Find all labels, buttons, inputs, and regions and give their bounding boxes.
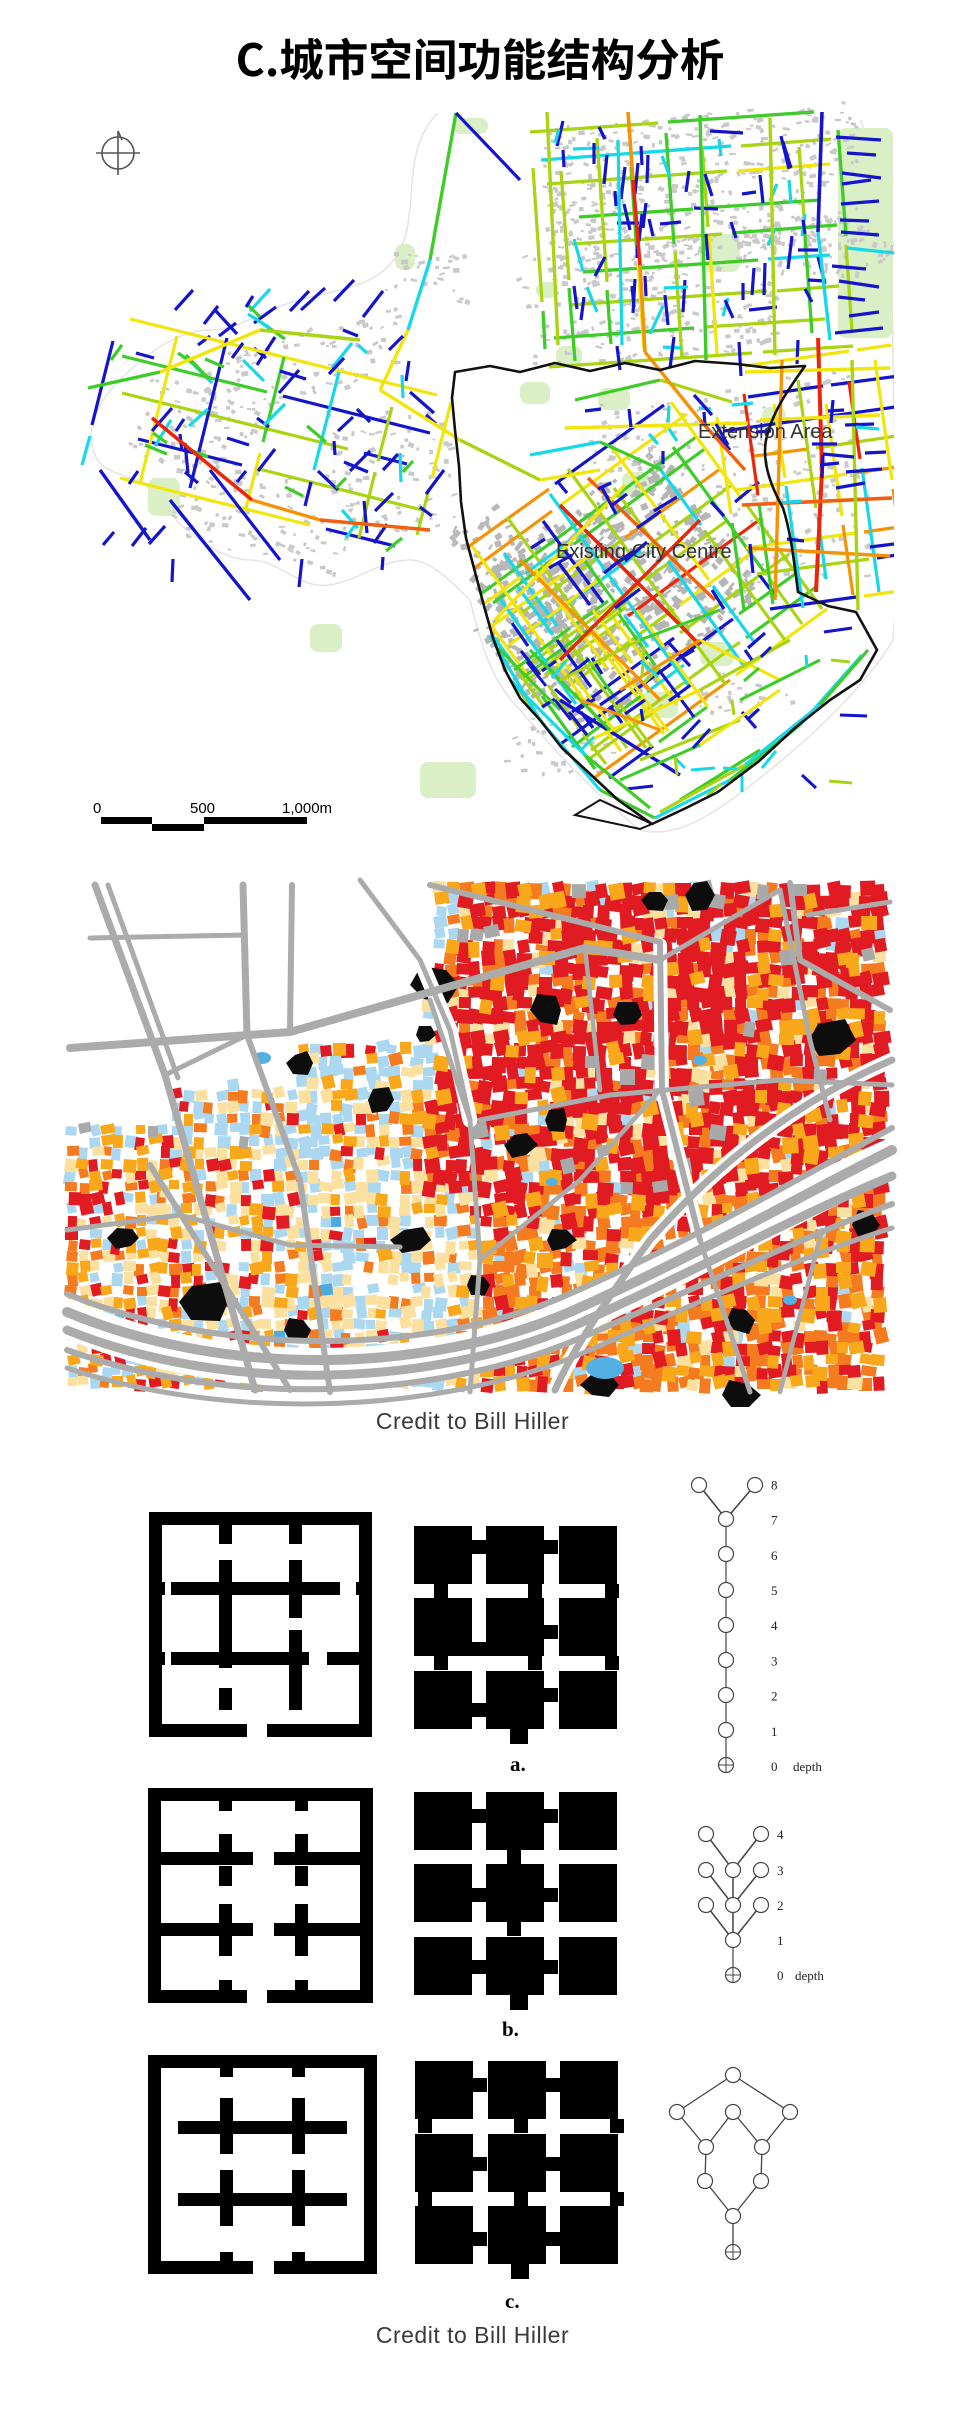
svg-text:Extension Area: Extension Area — [698, 421, 833, 443]
svg-text:1,000m: 1,000m — [282, 800, 332, 817]
svg-text:0: 0 — [93, 800, 101, 817]
svg-text:500: 500 — [190, 800, 215, 817]
svg-text:Existing City Centre: Existing City Centre — [556, 541, 732, 563]
